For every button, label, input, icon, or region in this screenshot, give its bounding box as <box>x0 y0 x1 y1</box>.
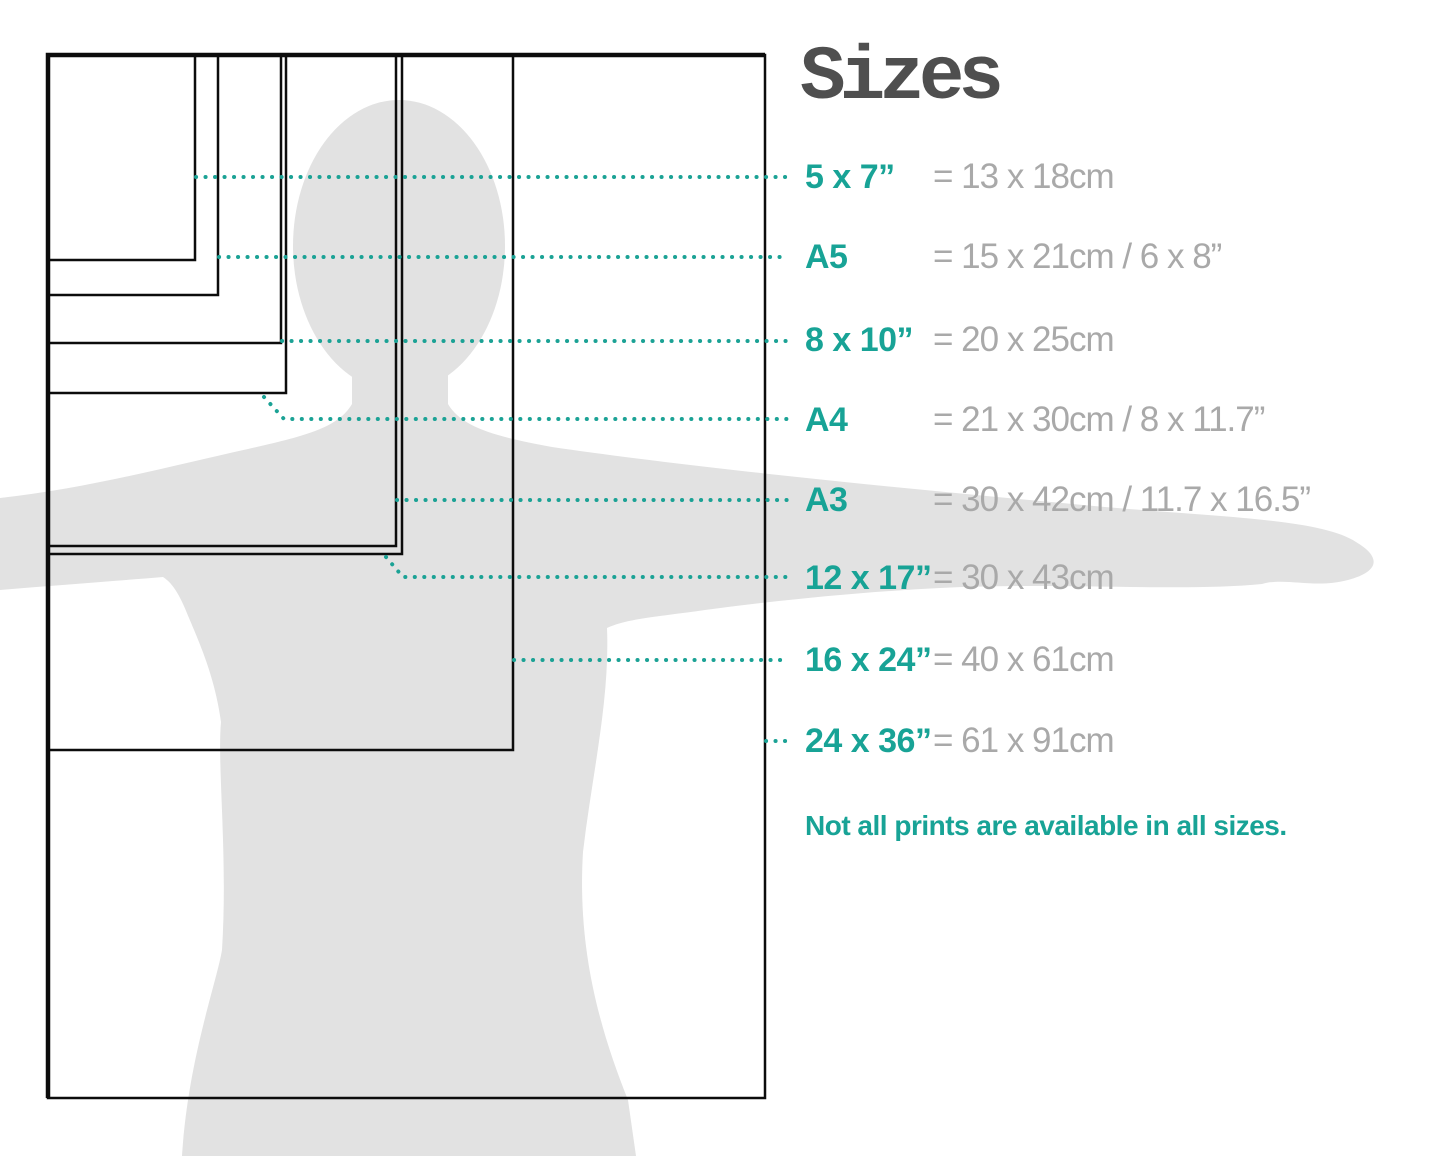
size-row-a3: A3 = 30 x 42cm / 11.7 x 16.5” <box>805 476 1310 524</box>
size-label: A4 <box>805 401 933 440</box>
silhouette-head <box>293 100 505 392</box>
size-label: 8 x 10” <box>805 321 933 360</box>
size-label: A5 <box>805 238 933 277</box>
size-row-8x10: 8 x 10” = 20 x 25cm <box>805 316 1114 364</box>
size-label: A3 <box>805 481 933 520</box>
size-row-a4: A4 = 21 x 30cm / 8 x 11.7” <box>805 396 1264 444</box>
page-title: Sizes <box>800 40 998 116</box>
size-metric: = 20 x 25cm <box>933 320 1114 360</box>
size-metric: = 30 x 43cm <box>933 558 1114 598</box>
size-metric: = 40 x 61cm <box>933 640 1114 680</box>
print-size-guide: Sizes 5 x 7” = 13 x 18cm A5 = 15 x 21cm … <box>0 0 1445 1156</box>
size-metric: = 21 x 30cm / 8 x 11.7” <box>933 400 1264 440</box>
size-row-12x17: 12 x 17” = 30 x 43cm <box>805 554 1114 602</box>
size-label: 5 x 7” <box>805 158 933 197</box>
size-metric: = 13 x 18cm <box>933 157 1114 197</box>
size-label: 16 x 24” <box>805 641 933 680</box>
size-rectangle-5x7 <box>48 55 195 260</box>
size-row-5x7: 5 x 7” = 13 x 18cm <box>805 153 1114 201</box>
size-rectangle-8x10 <box>48 55 281 343</box>
size-metric: = 61 x 91cm <box>933 721 1114 761</box>
size-row-24x36: 24 x 36” = 61 x 91cm <box>805 717 1114 765</box>
size-row-16x24: 16 x 24” = 40 x 61cm <box>805 636 1114 684</box>
size-row-a5: A5 = 15 x 21cm / 6 x 8” <box>805 233 1221 281</box>
availability-note: Not all prints are available in all size… <box>805 810 1287 842</box>
size-label: 24 x 36” <box>805 722 933 761</box>
size-metric: = 30 x 42cm / 11.7 x 16.5” <box>933 480 1310 520</box>
size-label: 12 x 17” <box>805 559 933 598</box>
size-metric: = 15 x 21cm / 6 x 8” <box>933 237 1221 277</box>
size-diagram <box>0 0 1445 1156</box>
